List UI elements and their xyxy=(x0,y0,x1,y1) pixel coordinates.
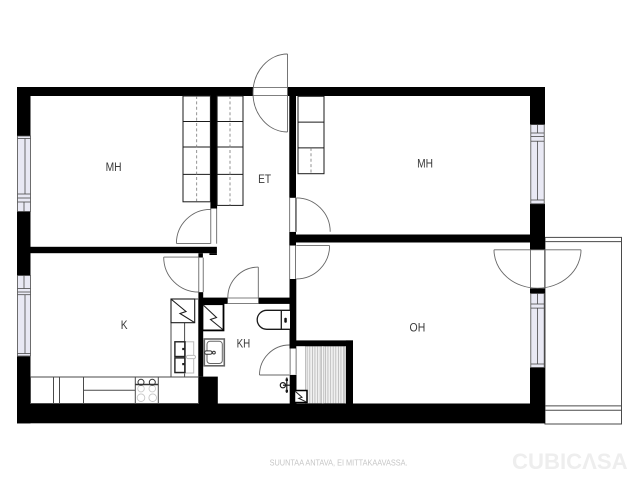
svg-text:MH: MH xyxy=(106,162,122,174)
svg-text:CUBICΛSA: CUBICΛSA xyxy=(512,449,628,474)
svg-text:MH: MH xyxy=(417,159,433,171)
svg-text:SUUNTAA ANTAVA, EI MITTAKAAVAS: SUUNTAA ANTAVA, EI MITTAKAAVASSA. xyxy=(270,458,408,467)
svg-text:K: K xyxy=(121,320,128,332)
svg-text:ET: ET xyxy=(258,174,271,186)
svg-text:OH: OH xyxy=(410,323,426,335)
svg-text:KH: KH xyxy=(237,339,251,351)
